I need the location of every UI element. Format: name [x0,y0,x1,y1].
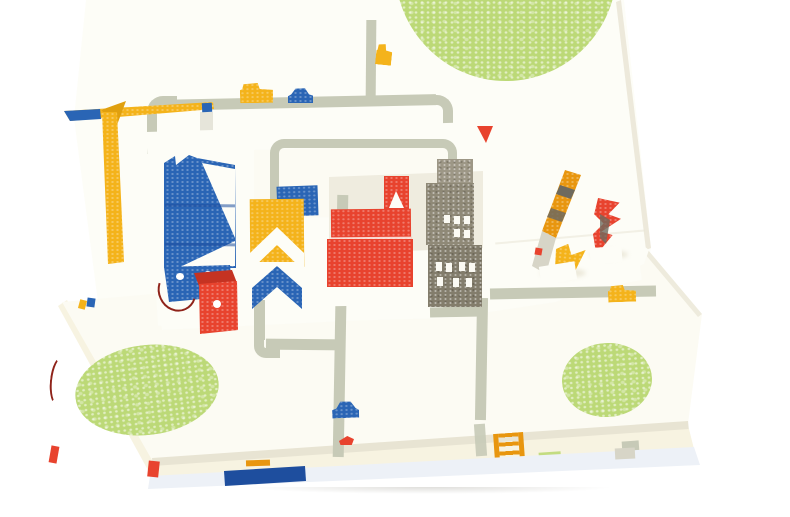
street-top-vertical [366,20,377,100]
red-cube-dot [213,300,221,308]
orange-dash-mark [246,460,270,467]
gray-tower-lower [428,245,482,307]
gray-tower-window [464,230,470,238]
street-l-horizontal [266,339,342,351]
street-right-connector [430,307,482,318]
popup-red-dot [534,247,542,255]
gray-tower-window [446,263,452,272]
edge-mark-blue [86,297,95,307]
terrace-street-top [286,139,432,148]
gray-tower-window [437,277,443,286]
gray-tower-window [466,278,472,287]
cover-red-mark [147,460,160,477]
wedge-red-mark [49,445,60,463]
gray-tower-window [454,216,460,224]
gray-tower-window [464,216,470,224]
red-hall-lower [327,239,413,287]
gray-tower-top [437,159,473,185]
crane-beam-end-mark [202,103,212,113]
book-shadow [170,487,690,497]
gray-tower-window [444,215,450,223]
binding-thread-curve [47,355,72,407]
gray-tower-window [469,263,475,272]
gray-tower-window [459,262,465,271]
gray-tower-window [453,278,459,287]
popup-white-base [589,246,622,264]
red-hall-upper [331,209,411,241]
gray-tower-window [454,229,460,237]
inner-page-street-mark [474,424,487,457]
popup-book-photo [0,0,790,517]
cover-gray-mark [615,447,636,459]
gray-tower-window [436,262,442,271]
